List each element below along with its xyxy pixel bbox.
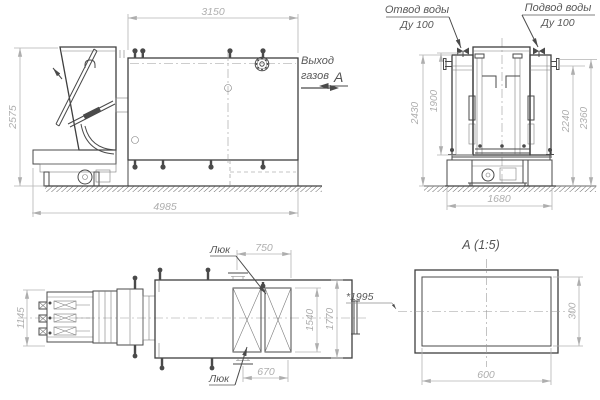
feed-hopper [53, 47, 128, 154]
gas-outlet-text-2: газов [301, 70, 329, 82]
tank-bottom-fittings [132, 160, 265, 170]
feeder-plan [39, 276, 155, 359]
dim-text-1900: 1900 [429, 89, 440, 112]
drain-boss [132, 137, 139, 144]
dim-text-1540: 1540 [305, 308, 316, 331]
dim-text-600: 600 [477, 369, 495, 381]
feeder-base-frame [33, 150, 116, 186]
foundation-block-left [447, 160, 472, 186]
dim-text-1145: 1145 [16, 307, 27, 329]
pivot-bracket [116, 98, 128, 112]
base-box [472, 160, 523, 183]
hopper-rear-box [473, 47, 530, 155]
gas-outlet-text-1: Выход [301, 55, 334, 67]
dim-overall-height-2575: 2575 [7, 48, 58, 186]
flange-opening [255, 57, 269, 71]
dim-1900: 1900 [429, 53, 473, 155]
end-view: Отвод воды Ду 100 Подвод воды Ду 100 [385, 2, 597, 210]
drawing-page: 3150 2575 4985 [0, 0, 600, 400]
dim-text-750: 750 [255, 242, 273, 254]
dim-text-4985: 4985 [153, 201, 177, 213]
dim-overall-length-4985: 4985 [32, 168, 298, 217]
hatch-label-bottom: Люк [208, 347, 247, 385]
section-a-view: А (1:5) 600 300 [398, 238, 583, 385]
water-inlet-pipe [551, 59, 559, 70]
hatch-bottom-plan [265, 288, 291, 352]
tank-top-fittings [132, 48, 265, 58]
dim-text-300: 300 [568, 302, 579, 319]
water-outlet-label: Отвод воды Ду 100 [385, 4, 461, 48]
view-a-letter: А [333, 69, 343, 85]
foundation-block-right [528, 160, 552, 186]
guide-brackets [482, 76, 520, 88]
dim-1770: 1770 [325, 280, 343, 358]
section-title: А (1:5) [461, 238, 500, 252]
tank-body [128, 48, 298, 186]
dim-text-1680: 1680 [487, 193, 511, 205]
outlet-leader [449, 17, 461, 48]
dim-text-2240: 2240 [561, 109, 572, 133]
dim-text-1770: 1770 [325, 307, 336, 330]
outlet-dn-text: Ду 100 [399, 19, 433, 31]
ground-line-side [45, 186, 322, 192]
hatch-top-plan [233, 288, 261, 352]
drawing-canvas: 3150 2575 4985 [0, 0, 600, 400]
dim-1540: 1540 [295, 288, 321, 352]
side-view: 3150 2575 4985 [7, 6, 348, 217]
lid-open-arrow [53, 68, 62, 79]
hatch-bottom-text: Люк [208, 373, 230, 385]
dim-text-2575: 2575 [7, 105, 19, 130]
dim-670: 670 [243, 360, 288, 382]
water-outlet-pipe [444, 59, 453, 70]
hatch-top-text: Люк [209, 244, 231, 256]
inlet-text: Подвод воды [525, 2, 592, 14]
outlet-text: Отвод воды [385, 4, 449, 16]
anchor-bolts [448, 148, 554, 160]
dim-text-670: 670 [257, 366, 275, 378]
dim-text-2430: 2430 [410, 101, 421, 125]
ref-1995-text: *1995 [346, 291, 374, 303]
water-inlet-label: Подвод воды Ду 100 [522, 2, 595, 47]
inlet-dn-text: Ду 100 [540, 17, 574, 29]
dim-tank-length-3150: 3150 [128, 6, 298, 53]
pump-rear [482, 169, 494, 181]
inlet-leader [522, 15, 538, 47]
plan-view: 1145 [16, 242, 396, 385]
dim-text-2360: 2360 [579, 106, 590, 130]
dim-2430: 2430 [410, 55, 452, 186]
dim-text-3150: 3150 [201, 6, 225, 18]
